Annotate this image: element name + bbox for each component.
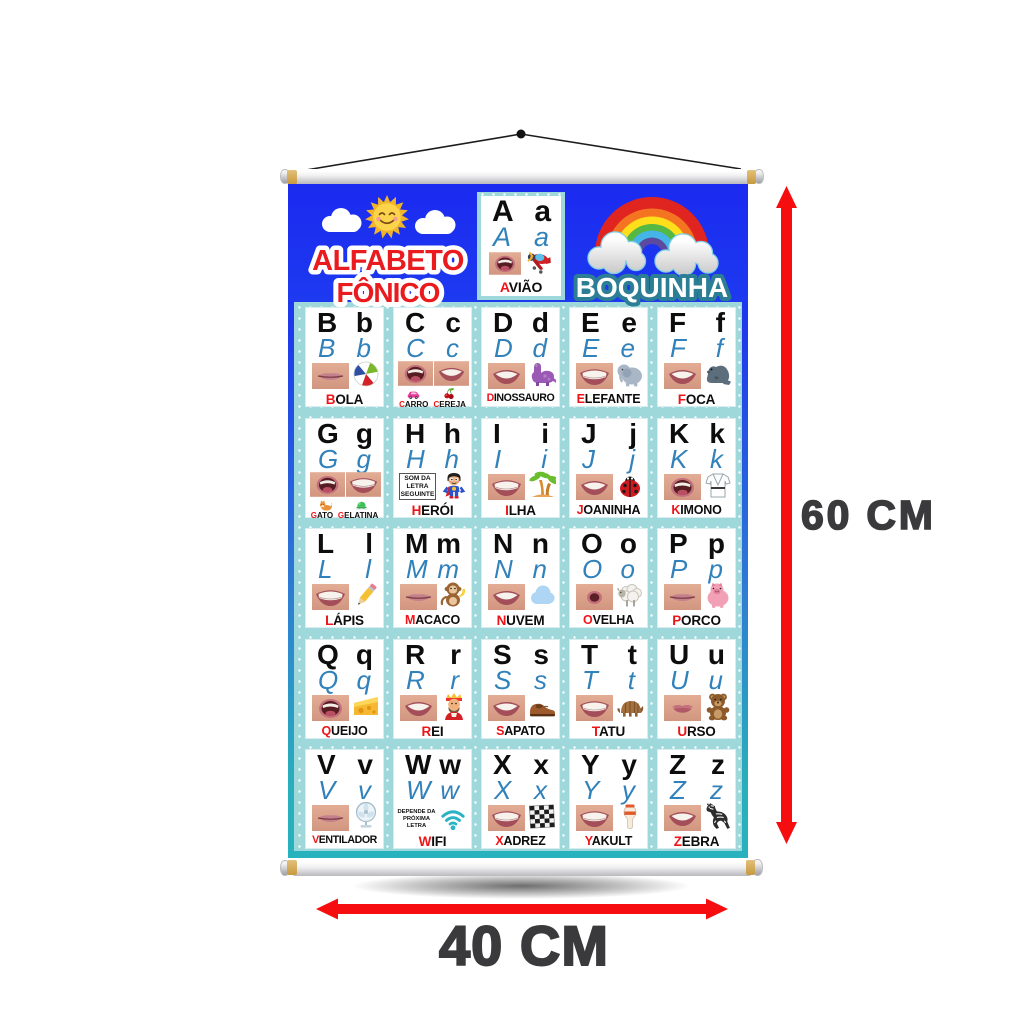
svg-text:FÔNICO: FÔNICO (337, 276, 440, 308)
svg-text:BOQUINHA: BOQUINHA (576, 272, 728, 303)
